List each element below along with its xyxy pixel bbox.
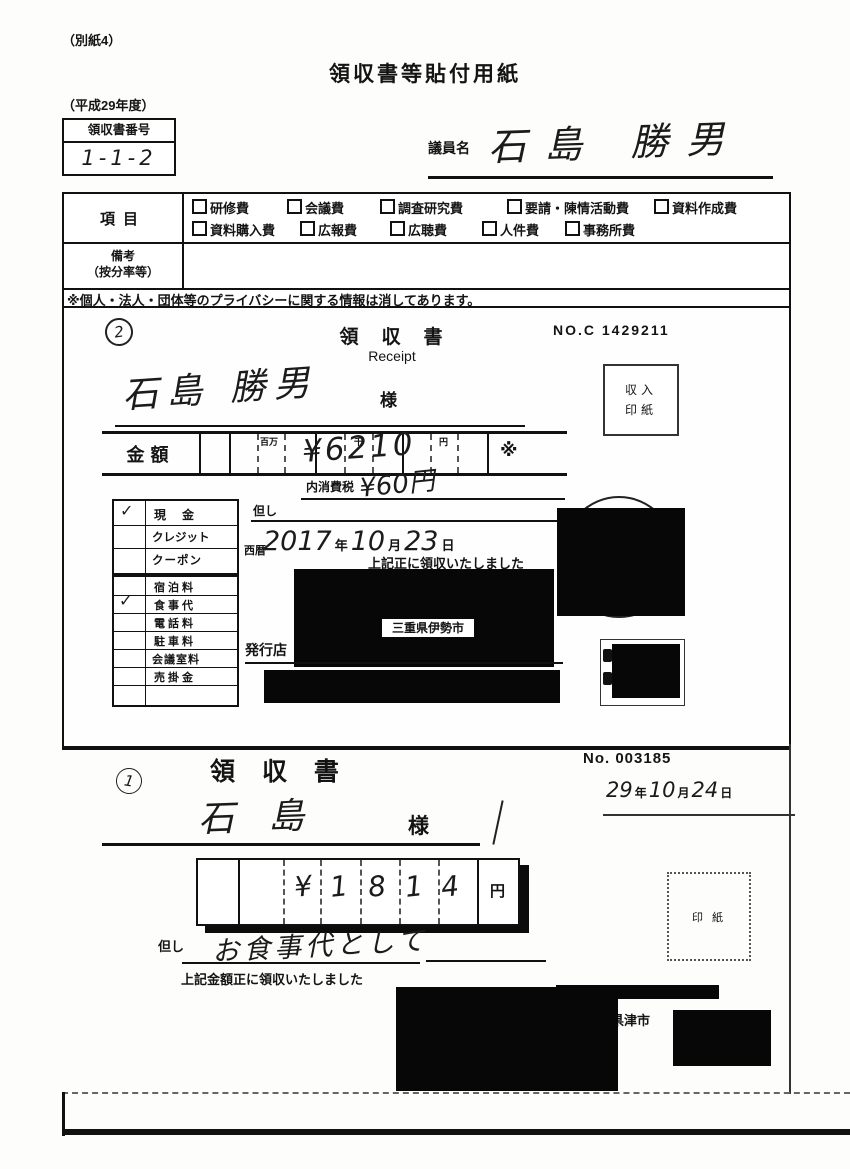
amount-grid-dashed: [284, 434, 286, 473]
receipt-2-index-circle: 2: [103, 316, 135, 348]
scanned-receipt-sheet: （別紙4） 領収書等貼付用紙 （平成29年度） 領収書番号 1-1-2 議員名 …: [0, 0, 850, 1169]
yen-label: 円: [477, 880, 518, 901]
proviso-label: 但し: [253, 502, 277, 519]
check-mark: ✓: [120, 501, 133, 520]
receipt-2-subtitle: Receipt: [302, 348, 482, 364]
fiscal-year: （平成29年度）: [62, 95, 154, 114]
digit-marker-million: 百万: [260, 435, 278, 448]
checkbox-icon: [390, 221, 405, 236]
receipt-1-right-edge: [789, 744, 791, 1094]
expense-row: ✓ 食事代: [114, 595, 237, 614]
amount-grid-dashed: [283, 860, 285, 924]
receipt-1-index-circle: 1: [114, 766, 144, 796]
pay-method-row: ✓ 現 金: [114, 501, 237, 526]
redacted-stamp-box: [600, 639, 685, 706]
amount-digit: 1: [320, 868, 357, 904]
receipt-1-proviso-label: 但し: [158, 936, 184, 955]
category-option: 会議費: [287, 198, 344, 217]
amount-grid-dashed: [257, 434, 259, 473]
amount-digit: 8: [358, 868, 395, 904]
revenue-stamp-box: 収入 印紙: [603, 364, 679, 436]
check-mark: ✓: [119, 591, 132, 610]
receipt-1-payee-underline: [102, 843, 480, 846]
category-option: 資料購入費: [192, 220, 275, 239]
digit-marker-yen: 円: [439, 435, 448, 448]
expense-row: 駐車料: [114, 631, 237, 650]
redaction-block: [673, 1010, 771, 1066]
amount-grid-line: [238, 860, 240, 924]
revenue-stamp-dotted-box: 印 紙: [667, 872, 751, 961]
receipt-1-date: 29 年 10 月 24 日: [606, 778, 734, 802]
receipt-1-received-note: 上記金額正に領収いたしました: [181, 969, 363, 988]
receipt-2-amount-row: 金額 百万 千 円 ¥6210 ※: [102, 431, 567, 476]
redaction-block: [557, 508, 685, 616]
remarks-label: 備考 （按分率等）: [64, 242, 184, 290]
page-title: 領収書等貼付用紙: [0, 58, 850, 88]
stamp-glyph-mark: [603, 672, 612, 685]
checkbox-icon: [300, 221, 315, 236]
redaction-block: [396, 987, 618, 1091]
pen-stroke-mark: [492, 800, 503, 844]
asterisk-mark: ※: [500, 440, 518, 461]
amount-grid-dashed: [457, 434, 459, 473]
payment-method-box: ✓ 現 金 クレジット クーポン: [112, 499, 239, 575]
issuer-underline: [245, 662, 563, 664]
issuer-city-visible: 三重県伊勢市: [382, 619, 474, 637]
redaction-block: [612, 644, 680, 698]
category-options: 研修費 会議費 調査研究費 要請・陳情活動費 資料作成費 資料購入費 広報費 広…: [182, 194, 789, 244]
checkbox-icon: [482, 221, 497, 236]
pay-method-row: クーポン: [114, 548, 237, 571]
checkbox-icon: [507, 199, 522, 214]
receipt-1-honorific: 様: [408, 810, 429, 840]
expense-row: 電話料: [114, 613, 237, 632]
receipt-2: 2 領 収 書 Receipt NO.C 1429211 収入 印紙 石島 勝男…: [62, 306, 791, 750]
category-option: 研修費: [192, 198, 249, 217]
amount-digit: 1: [395, 868, 432, 904]
issuer-label: 発行店: [245, 640, 287, 660]
tax-label: 内消費税: [306, 478, 354, 495]
purpose-underline-2: [426, 960, 546, 962]
category-option: 広報費: [300, 220, 357, 239]
member-name-handwritten: 石島 勝男: [487, 108, 743, 172]
tax-underline: [301, 498, 565, 500]
receipt-2-payee-underline: [115, 425, 525, 427]
amount-grid-line: [229, 434, 231, 473]
receipt-2-honorific: 様: [380, 386, 397, 411]
receipt-2-payee-handwritten: 石島 勝男: [120, 353, 319, 419]
category-option: 広聴費: [390, 220, 447, 239]
receipt-1-date-underline: [603, 814, 795, 816]
redaction-block: 三重県伊勢市: [294, 569, 554, 667]
expense-row: 売掛金: [114, 667, 237, 686]
checkbox-icon: [192, 221, 207, 236]
amount-digit: ¥: [284, 868, 321, 904]
checkbox-icon: [287, 199, 302, 214]
checkbox-icon: [192, 199, 207, 214]
purpose-underline: [182, 962, 420, 964]
paper-edge-dashed-line: [62, 1092, 850, 1094]
remarks-value-empty: [182, 242, 789, 290]
category-option: 事務所費: [565, 220, 635, 239]
receipt-number-label: 領収書番号: [64, 120, 174, 143]
receipt-1-payee-handwritten: 石島: [197, 786, 339, 843]
category-option: 要請・陳情活動費: [507, 198, 629, 217]
proviso-underline: [251, 520, 569, 522]
category-label: 項目: [64, 194, 184, 244]
expense-row: 会議室料: [114, 649, 237, 668]
amount-digit: 4: [431, 868, 468, 904]
category-option: 人件費: [482, 220, 539, 239]
receipt-1-amount-row: ¥ 1 8 1 4 円: [196, 858, 520, 926]
stamp-glyph-mark: [603, 649, 612, 662]
redaction-block: [264, 670, 560, 703]
checkbox-icon: [654, 199, 669, 214]
paper-bottom-edge: [62, 1129, 850, 1135]
amount-grid-line: [487, 434, 489, 473]
category-option: 資料作成費: [654, 198, 737, 217]
receipt-number-value: 1-1-2: [64, 143, 174, 173]
member-name-underline: [428, 176, 773, 179]
receipt-2-serial-number: NO.C 1429211: [553, 322, 670, 338]
category-table: 項目 研修費 会議費 調査研究費 要請・陳情活動費 資料作成費 資料購入費 広報…: [62, 192, 791, 310]
receipt-number-box: 領収書番号 1-1-2: [62, 118, 176, 176]
receipt-1-serial-number: No. 003185: [583, 750, 671, 767]
receipt-1-title: 領 収 書: [210, 752, 349, 788]
checkbox-icon: [380, 199, 395, 214]
expense-row: 宿泊料: [114, 577, 237, 596]
checkbox-icon: [565, 221, 580, 236]
receipt-2-title: 領 収 書: [302, 322, 482, 349]
amount-label: 金額: [102, 434, 201, 473]
member-name-label: 議員名: [428, 138, 470, 158]
expense-type-box: 宿泊料 ✓ 食事代 電話料 駐車料 会議室料 売掛金: [112, 575, 239, 707]
corner-note: （別紙4）: [62, 30, 121, 49]
pay-method-row: クレジット: [114, 525, 237, 549]
category-option: 調査研究費: [380, 198, 463, 217]
